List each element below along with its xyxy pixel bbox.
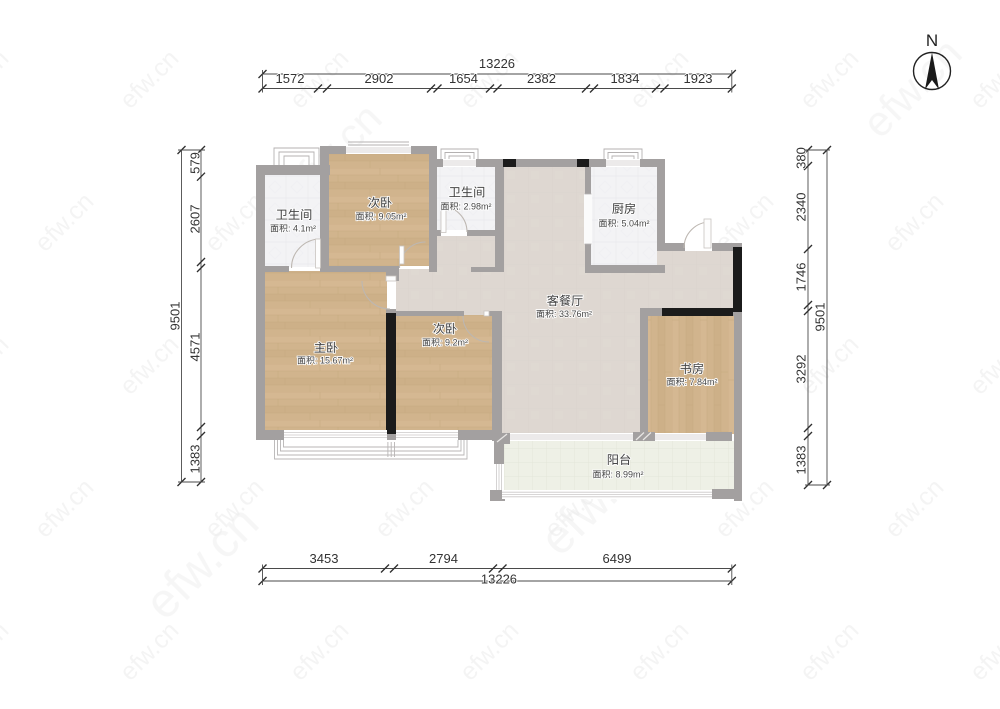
svg-text:1383: 1383 [188,445,203,474]
svg-text:3292: 3292 [794,355,809,384]
svg-text:9501: 9501 [168,302,183,331]
svg-text:: 7.84m²: : 7.84m² [685,377,718,387]
svg-text:6499: 6499 [603,551,632,566]
svg-text:2607: 2607 [188,205,203,234]
svg-text:2794: 2794 [429,551,458,566]
svg-text:: 8.99m²: : 8.99m² [611,470,644,480]
svg-text:1654: 1654 [449,71,478,86]
svg-text:2382: 2382 [527,71,556,86]
svg-text:579: 579 [188,152,203,174]
svg-text:9501: 9501 [813,303,828,332]
svg-text:2902: 2902 [365,71,394,86]
svg-text:13226: 13226 [479,56,515,71]
svg-text:3453: 3453 [310,551,339,566]
svg-text:1923: 1923 [684,71,713,86]
svg-text:: 15.67m²: : 15.67m² [315,356,353,366]
svg-text:N: N [926,31,938,50]
svg-text:13226: 13226 [481,572,517,587]
svg-text:4571: 4571 [188,333,203,362]
svg-text:2340: 2340 [794,193,809,222]
svg-text:: 9.05m²: : 9.05m² [374,212,407,222]
svg-text:: 5.04m²: : 5.04m² [617,219,650,229]
svg-text:1834: 1834 [611,71,640,86]
svg-text:: 4.1m²: : 4.1m² [288,224,316,234]
svg-text:: 33.76m²: : 33.76m² [554,309,592,319]
svg-text:1383: 1383 [794,446,809,475]
svg-text:1572: 1572 [276,71,305,86]
svg-text:: 9.2m²: : 9.2m² [440,338,468,348]
svg-text:: 2.98m²: : 2.98m² [459,202,492,212]
svg-text:1746: 1746 [794,263,809,292]
